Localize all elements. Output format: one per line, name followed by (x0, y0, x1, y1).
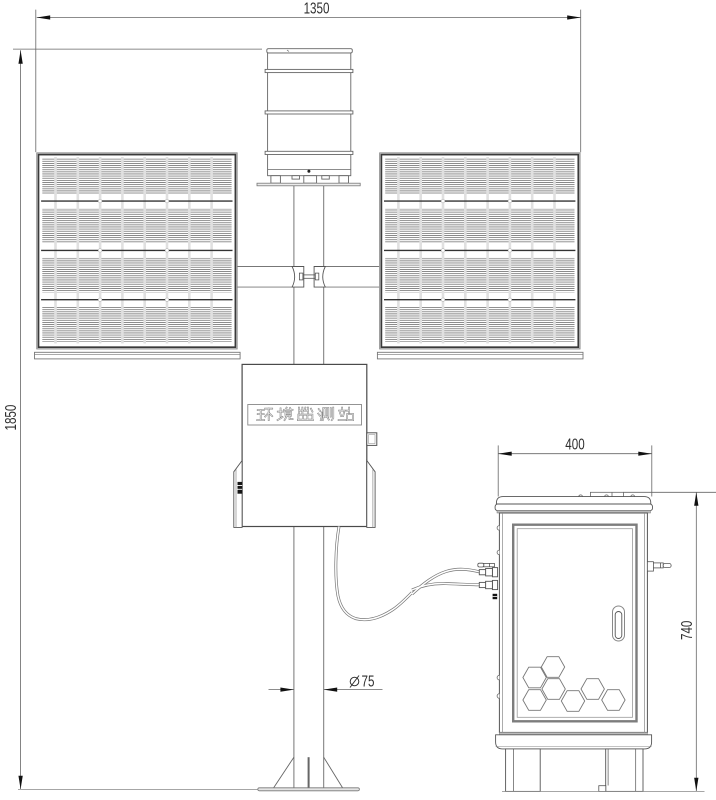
svg-text:400: 400 (565, 436, 585, 453)
svg-text:740: 740 (678, 620, 695, 640)
svg-text:1850: 1850 (3, 404, 20, 430)
svg-text:1350: 1350 (304, 0, 330, 17)
svg-text:75: 75 (362, 673, 375, 690)
